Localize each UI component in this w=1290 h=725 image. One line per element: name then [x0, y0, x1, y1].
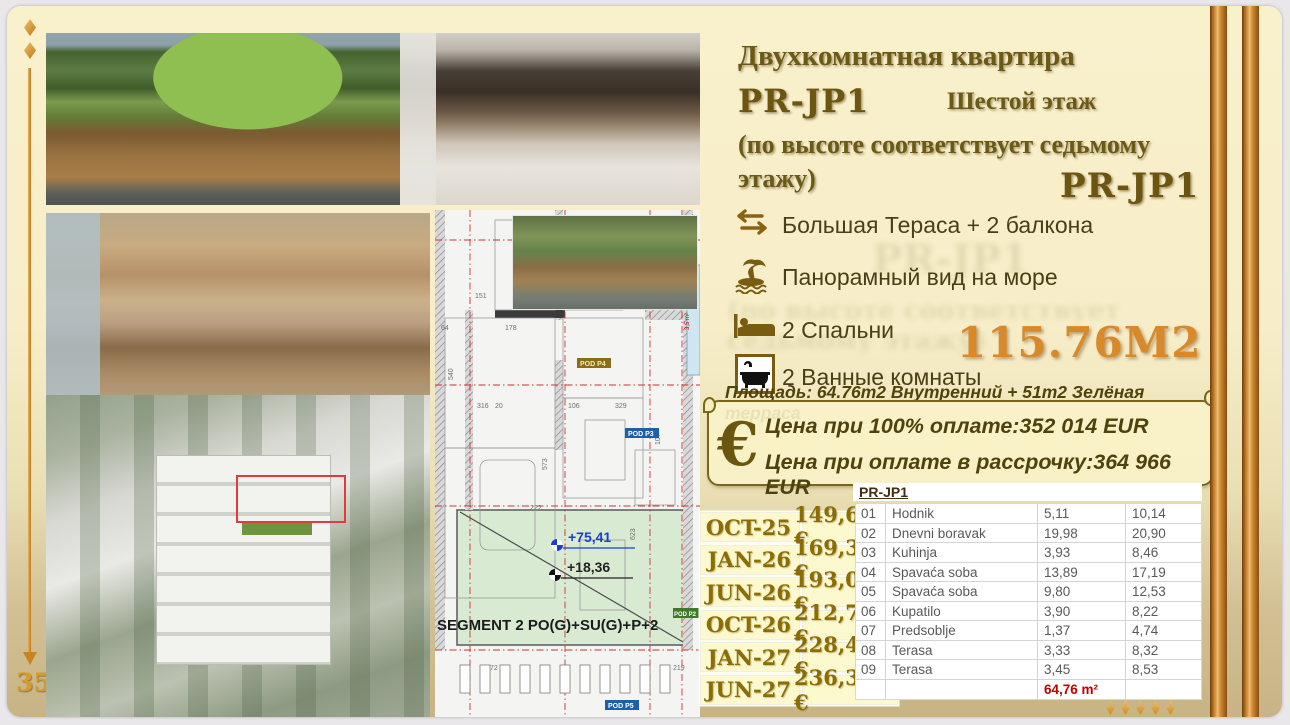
slide-title: Двухкомнатная квартира [738, 40, 1075, 73]
swap-arrows-icon [735, 209, 769, 235]
down-arrow-ornament [23, 652, 37, 665]
bedroom-photo [46, 213, 430, 395]
segment-label: SEGMENT 2 PO(G)+SU(G)+P+2 [437, 617, 658, 634]
pod-p3-label: POD P3 [628, 431, 654, 438]
table-row: 07Predsoblje1,374,74 [856, 621, 1201, 641]
vertical-rule [28, 68, 31, 652]
dim-label: 316 [477, 403, 489, 410]
total-area: 115.76М2 [957, 318, 1201, 367]
pool-area-label: 3,5 m² [685, 313, 691, 330]
dim-label: 222 [530, 505, 542, 512]
gold-stripe-outer [1242, 6, 1259, 717]
table-row: 03Kuhinja3,938,46 [856, 543, 1201, 563]
apartment-highlight-box [236, 475, 346, 523]
room-table: 01Hodnik5,1110,14 02Dnevni boravak19,982… [855, 503, 1202, 700]
total-area-value: 64,76 m² [1038, 680, 1126, 700]
table-row: 02Dnevni boravak19,9820,90 [856, 524, 1201, 544]
feature-terrace: Большая Тераса + 2 балкона [782, 212, 1093, 239]
dim-label: 151 [475, 293, 487, 300]
kitchen-photo [400, 33, 700, 205]
payment-date: JAN-26 [700, 545, 800, 575]
price-full: Цена при 100% оплате:352 014 EUR [765, 414, 1149, 439]
floor-plan: 3,5 m² 151 178 316 106 329 222 573 107 6… [435, 210, 700, 717]
mini-arrows-ornament [1103, 701, 1178, 717]
rooftop-garden-photo [46, 33, 400, 205]
terrace-photo-inset [512, 215, 698, 310]
gold-stripe-inner [1210, 6, 1227, 717]
feature-sea-view: Панорамный вид на море [782, 264, 1058, 291]
dim-label: 540 [448, 368, 455, 380]
diamond-ornament-second [24, 42, 36, 59]
apartment-code-repeat: PR-JP1 [1060, 166, 1199, 206]
pod-p4-label: POD P4 [580, 361, 606, 368]
table-total-row: 64,76 m² [856, 680, 1201, 700]
euro-symbol: € [717, 410, 759, 480]
dim-label: 623 [630, 528, 637, 540]
payment-date: JAN-27 [700, 642, 800, 672]
room-table-header: PR-JP1 [853, 483, 1202, 501]
payment-date: JUN-26 [700, 577, 800, 607]
dim-label: 573 [542, 458, 549, 470]
floor-label: Шестой этаж [947, 88, 1096, 116]
table-row: 01Hodnik5,1110,14 [856, 504, 1201, 524]
dim-label: 106 [568, 403, 580, 410]
building-render-photo [46, 395, 430, 717]
dim-label: 219 [673, 665, 685, 672]
apartment-code: PR-JP1 [738, 82, 869, 120]
payment-date: OCT-25 [700, 512, 800, 542]
dim-label: 329 [615, 403, 627, 410]
scroll-curl-left [703, 397, 716, 413]
payment-date: JUN-27 [700, 675, 800, 705]
presentation-slide: 35 [7, 6, 1282, 717]
table-row: 06Kupatilo3,908,22 [856, 602, 1201, 622]
green-roof [242, 523, 312, 535]
diamond-ornament-top [24, 19, 36, 36]
pod-p2-label: POD P2 [674, 612, 697, 618]
pod-p5-label: POD P5 [608, 703, 634, 710]
table-row: 05Spavaća soba9,8012,53 [856, 582, 1201, 602]
elevation-black: +18,36 [567, 559, 610, 575]
bed-icon [733, 312, 775, 340]
dim-label: 178 [505, 325, 517, 332]
dim-label: 20 [495, 403, 503, 410]
elevation-blue: +75,41 [568, 529, 611, 545]
price-box: € Цена при 100% оплате:352 014 EUR Цена … [707, 400, 1214, 486]
table-row: 08Terasa3,338,32 [856, 641, 1201, 661]
dim-label: 64 [441, 325, 449, 332]
palm-island-icon [733, 254, 773, 294]
table-row: 04Spavaća soba13,8917,19 [856, 563, 1201, 583]
dim-label: 72 [490, 665, 498, 672]
payment-date: OCT-26 [700, 610, 800, 640]
feature-bedrooms: 2 Спальни [782, 317, 894, 344]
table-row: 09Terasa3,458,53 [856, 660, 1201, 680]
